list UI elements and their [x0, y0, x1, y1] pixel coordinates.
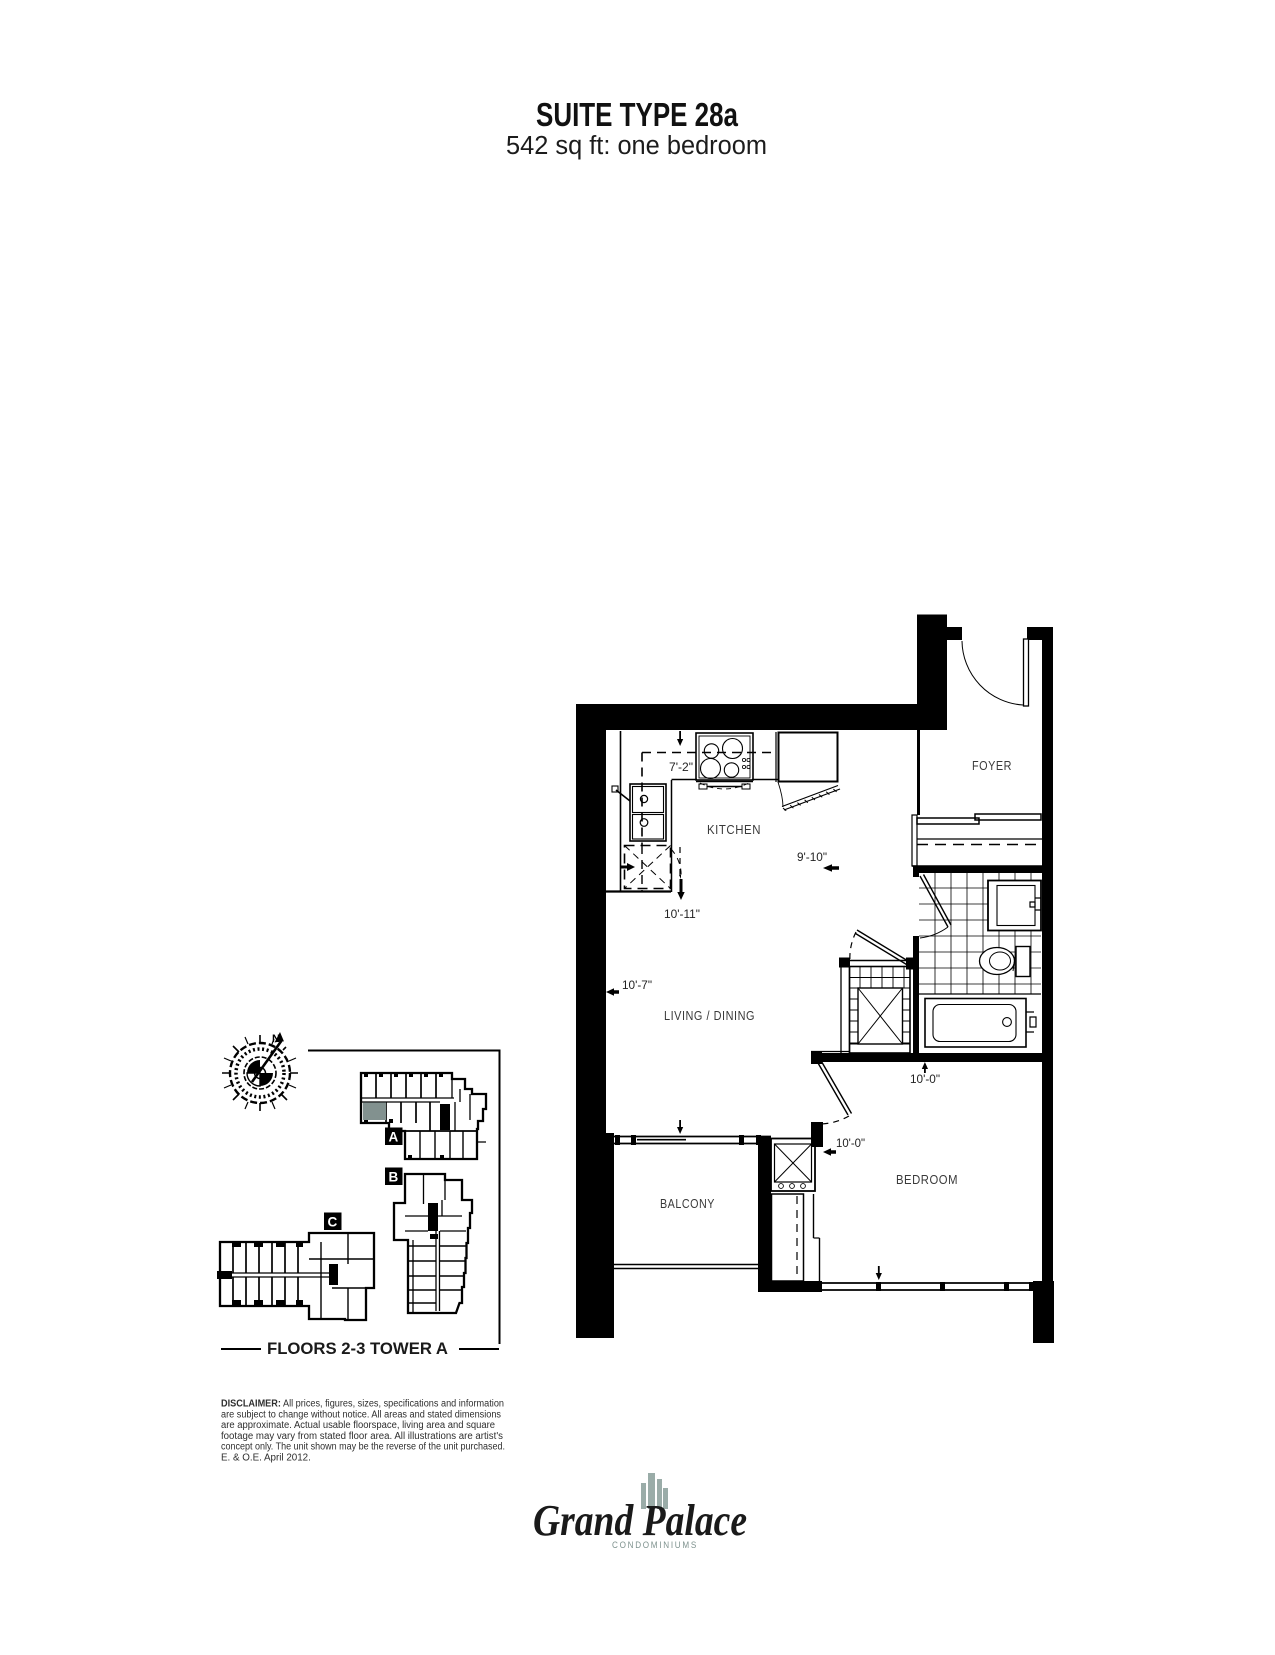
svg-text:FOYER: FOYER — [972, 759, 1012, 773]
svg-text:concept only. The unit shown m: concept only. The unit shown may be the … — [221, 1442, 505, 1453]
svg-text:7'-2": 7'-2" — [669, 762, 693, 774]
svg-text:KITCHEN: KITCHEN — [707, 823, 761, 837]
svg-text:9'-10": 9'-10" — [797, 852, 827, 864]
svg-text:E. & O.E. April 2012.: E. & O.E. April 2012. — [221, 1453, 311, 1464]
svg-text:footage may vary from stated f: footage may vary from stated floor area.… — [221, 1431, 503, 1442]
svg-text:10'-0": 10'-0" — [836, 1138, 865, 1150]
svg-text:DISCLAIMER: All prices, figure: DISCLAIMER: All prices, figures, sizes, … — [221, 1399, 504, 1410]
svg-text:10'-7": 10'-7" — [622, 980, 652, 992]
svg-text:Grand Palace: Grand Palace — [533, 1496, 747, 1545]
svg-text:are approximate. Actual usable: are approximate. Actual usable floorspac… — [221, 1420, 496, 1431]
svg-text:FLOORS 2-3 TOWER A: FLOORS 2-3 TOWER A — [267, 1339, 448, 1358]
svg-text:N: N — [272, 1033, 280, 1045]
svg-text:10'-0": 10'-0" — [910, 1074, 940, 1086]
svg-text:are subject to change without: are subject to change without notice. Al… — [221, 1409, 501, 1420]
svg-text:BALCONY: BALCONY — [660, 1197, 715, 1211]
svg-text:CONDOMINIUMS: CONDOMINIUMS — [612, 1540, 698, 1551]
svg-text:A: A — [389, 1130, 399, 1145]
svg-text:C: C — [328, 1215, 338, 1230]
svg-text:B: B — [389, 1170, 399, 1185]
svg-text:10'-11": 10'-11" — [664, 909, 700, 921]
svg-text:SUITE TYPE 28a: SUITE TYPE 28a — [536, 96, 739, 133]
svg-text:LIVING / DINING: LIVING / DINING — [664, 1009, 755, 1023]
svg-text:BEDROOM: BEDROOM — [896, 1173, 958, 1187]
svg-text:542 sq ft: one bedroom: 542 sq ft: one bedroom — [506, 132, 767, 160]
